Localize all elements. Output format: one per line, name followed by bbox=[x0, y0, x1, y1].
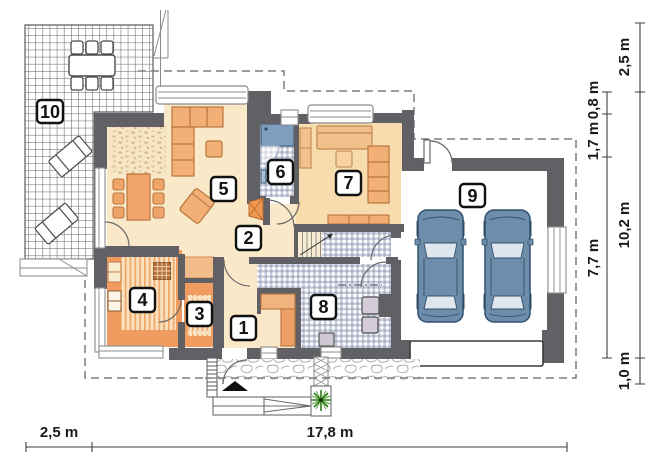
svg-text:10,2 m: 10,2 m bbox=[616, 202, 633, 249]
svg-text:2,5 m: 2,5 m bbox=[616, 38, 633, 76]
svg-text:7: 7 bbox=[343, 173, 353, 193]
svg-text:1,0 m: 1,0 m bbox=[616, 352, 633, 390]
svg-text:0,8 m: 0,8 m bbox=[585, 81, 602, 119]
svg-text:2: 2 bbox=[243, 228, 253, 248]
svg-text:4: 4 bbox=[137, 290, 147, 310]
svg-text:6: 6 bbox=[275, 162, 285, 182]
svg-text:5: 5 bbox=[218, 179, 228, 199]
svg-text:10: 10 bbox=[40, 102, 60, 122]
svg-text:3: 3 bbox=[194, 304, 204, 324]
svg-text:1,7 m: 1,7 m bbox=[585, 122, 602, 160]
svg-text:2,5 m: 2,5 m bbox=[40, 424, 78, 441]
svg-text:17,8 m: 17,8 m bbox=[307, 424, 354, 441]
svg-text:7,7 m: 7,7 m bbox=[585, 239, 602, 277]
svg-text:1: 1 bbox=[238, 318, 248, 338]
svg-text:9: 9 bbox=[467, 186, 477, 206]
svg-text:8: 8 bbox=[318, 297, 328, 317]
